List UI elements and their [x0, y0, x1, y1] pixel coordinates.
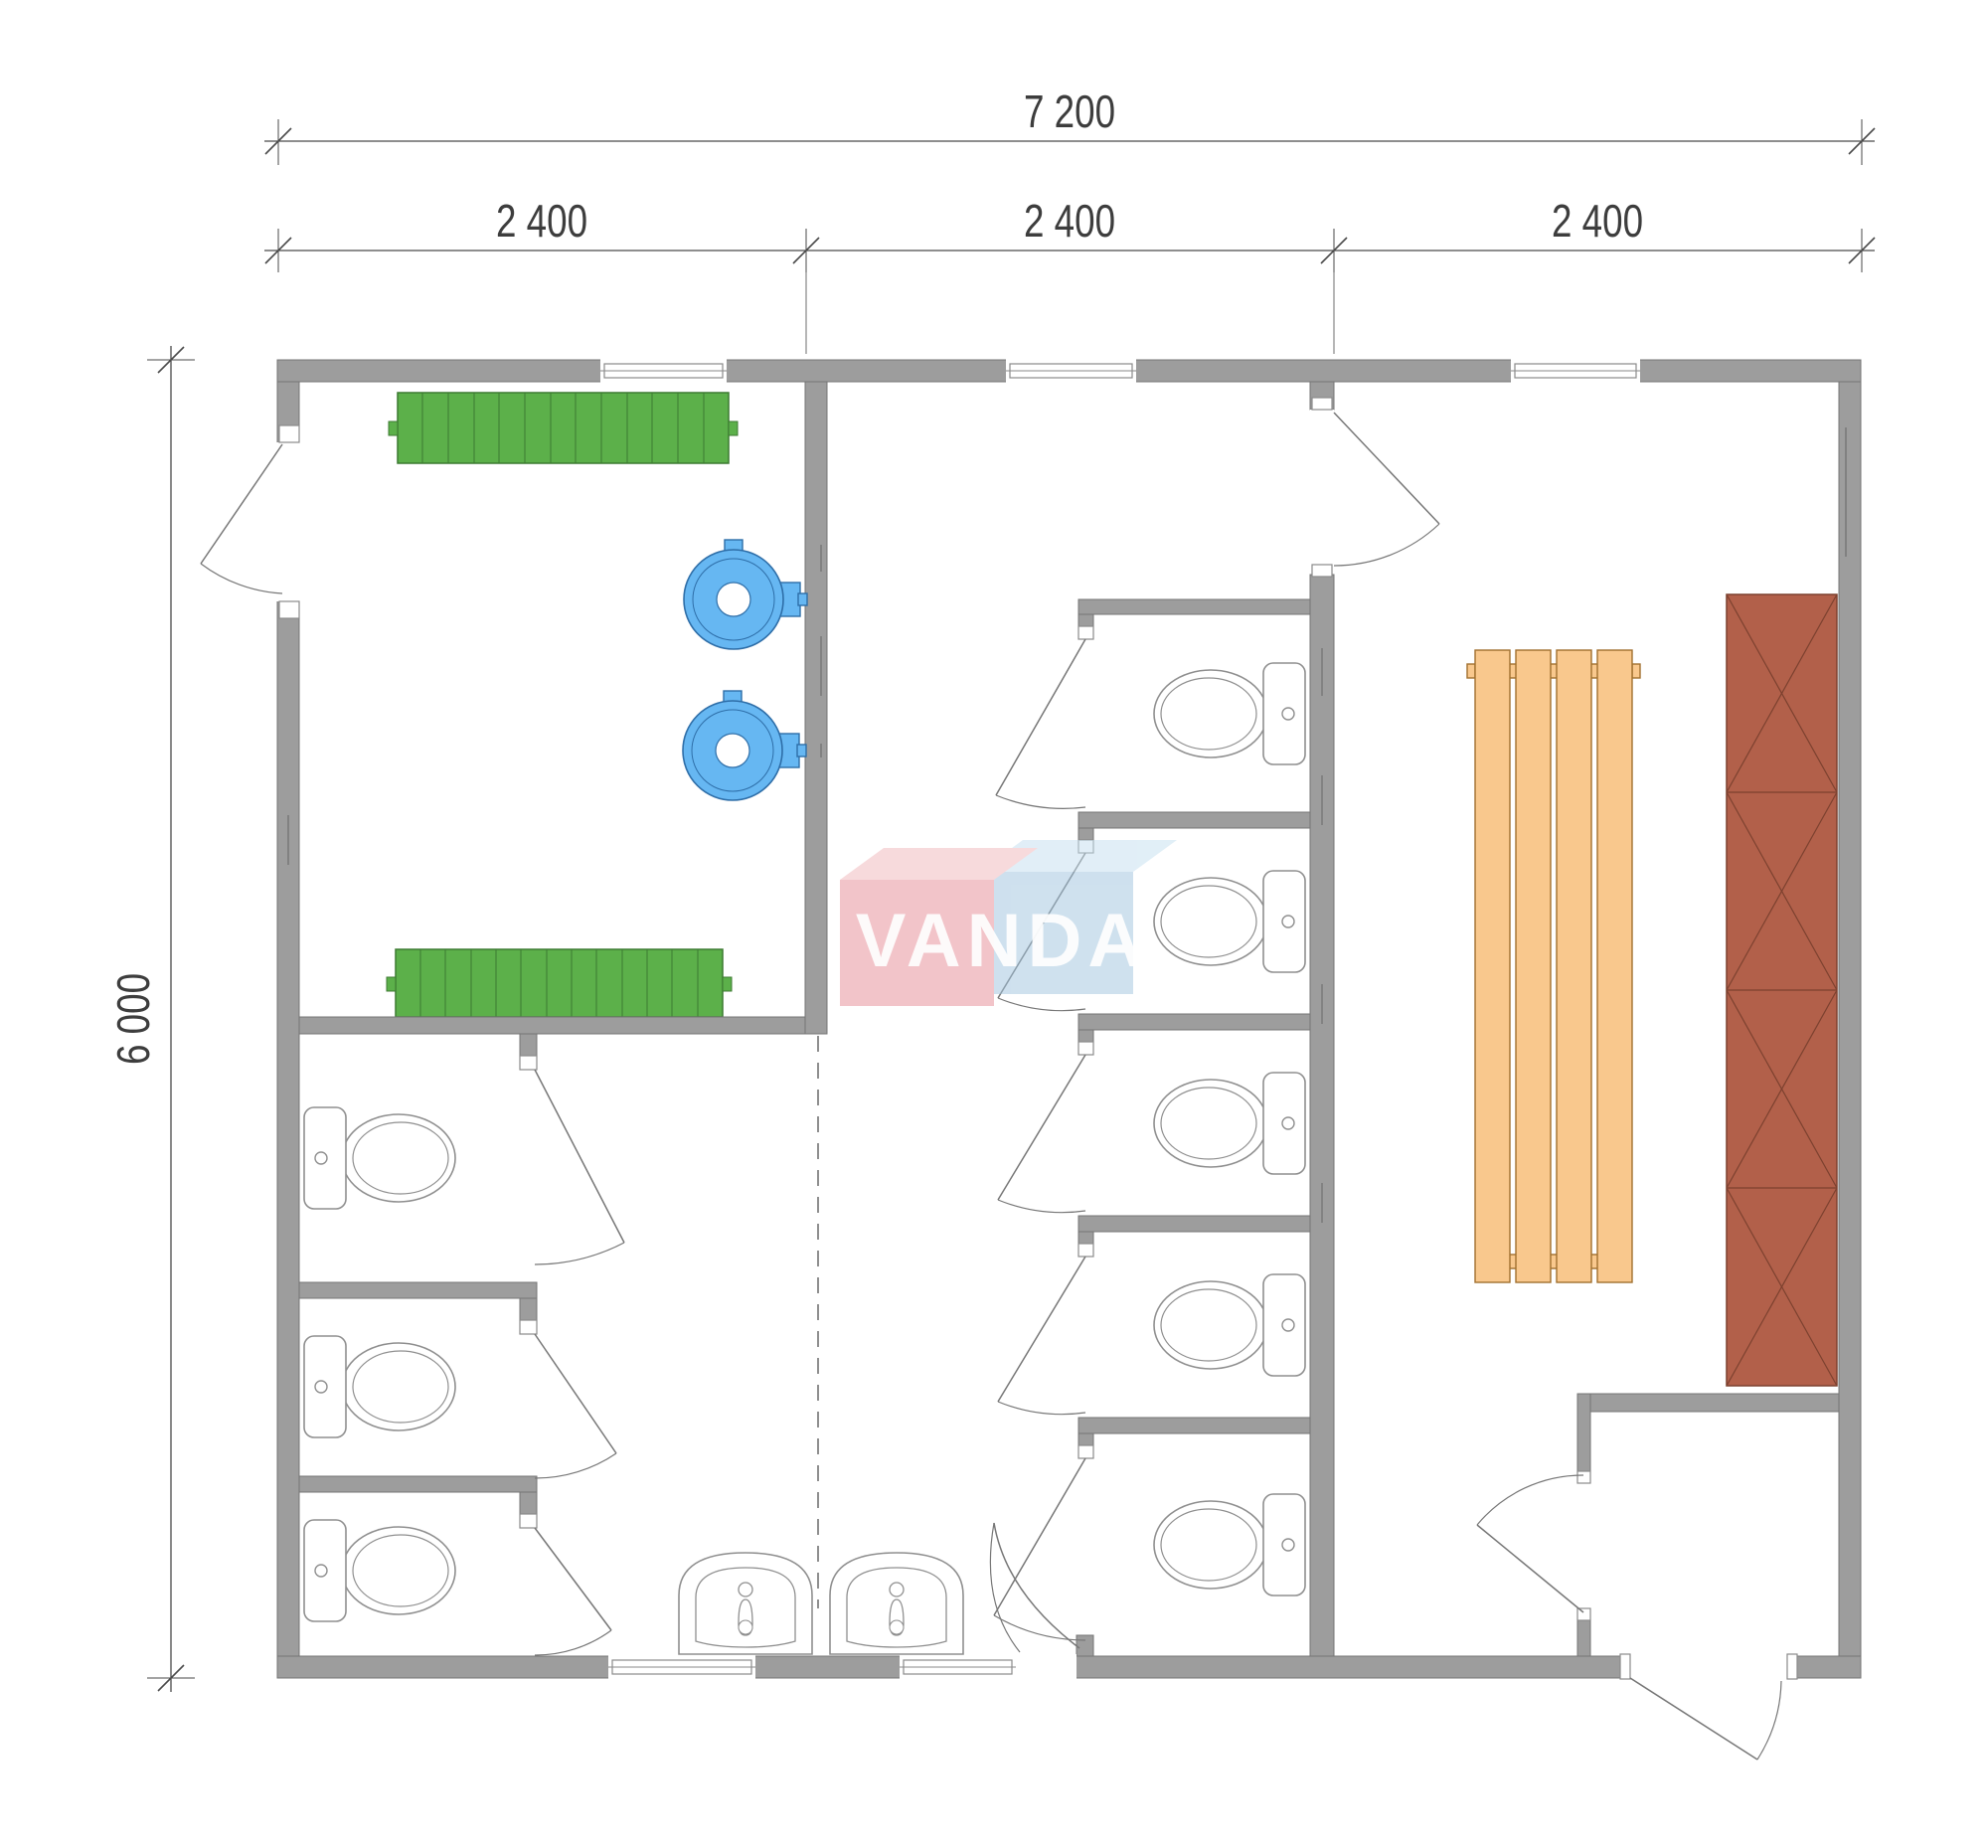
dim-module-1: 2 400	[496, 195, 587, 247]
toilet	[1154, 1494, 1305, 1596]
toilet	[304, 1107, 455, 1209]
sink	[679, 1553, 812, 1654]
window-bottom-left	[608, 1654, 755, 1680]
floor-plan-canvas: VANDA 7 200 2 400 2 400 2 400 6 000	[0, 0, 1988, 1848]
wall-exterior-right	[1839, 382, 1861, 1656]
water-heater	[683, 691, 806, 800]
toilet	[1154, 663, 1305, 764]
green-bench-top	[389, 393, 738, 463]
green-bench-bottom	[387, 949, 732, 1017]
toilet	[1154, 1274, 1305, 1376]
dim-total-width: 7 200	[1024, 85, 1115, 137]
window-top-right	[1511, 358, 1640, 384]
door-exterior-bottom-right	[1620, 1654, 1797, 1760]
stall-doors-middle	[994, 626, 1093, 1640]
toilets-middle-column	[1154, 663, 1305, 1596]
sink	[830, 1553, 963, 1654]
wall-partition-left-room	[805, 382, 827, 1034]
door-exterior-left	[201, 425, 301, 618]
stall-doors-left	[520, 1056, 624, 1655]
watermark-text: VANDA	[856, 899, 1149, 983]
toilet	[1154, 871, 1305, 972]
dim-module-3: 2 400	[1552, 195, 1643, 247]
window-bottom-middle	[900, 1654, 1016, 1680]
window-top-middle	[1006, 358, 1136, 384]
wall-left-room-south	[299, 1017, 805, 1034]
toilet	[1154, 1073, 1305, 1174]
toilet	[304, 1336, 455, 1437]
water-heaters	[683, 540, 807, 800]
floor-plan-drawing: VANDA 7 200 2 400 2 400 2 400 6 000	[0, 0, 1988, 1848]
window-top-left	[600, 358, 727, 384]
water-heater	[684, 540, 807, 649]
wall-vestibule-north	[1590, 1394, 1839, 1412]
door-vestibule	[1477, 1471, 1590, 1620]
locker-cabinet	[1727, 594, 1837, 1386]
dim-module-2: 2 400	[1024, 195, 1115, 247]
toilets-left-column	[304, 1107, 455, 1621]
wood-bench	[1467, 650, 1640, 1282]
door-right-room	[1310, 398, 1439, 577]
dim-total-height: 6 000	[107, 973, 159, 1065]
washbasins	[679, 1553, 963, 1654]
wall-mid-stalls-top	[1078, 599, 1334, 614]
toilet	[304, 1520, 455, 1621]
